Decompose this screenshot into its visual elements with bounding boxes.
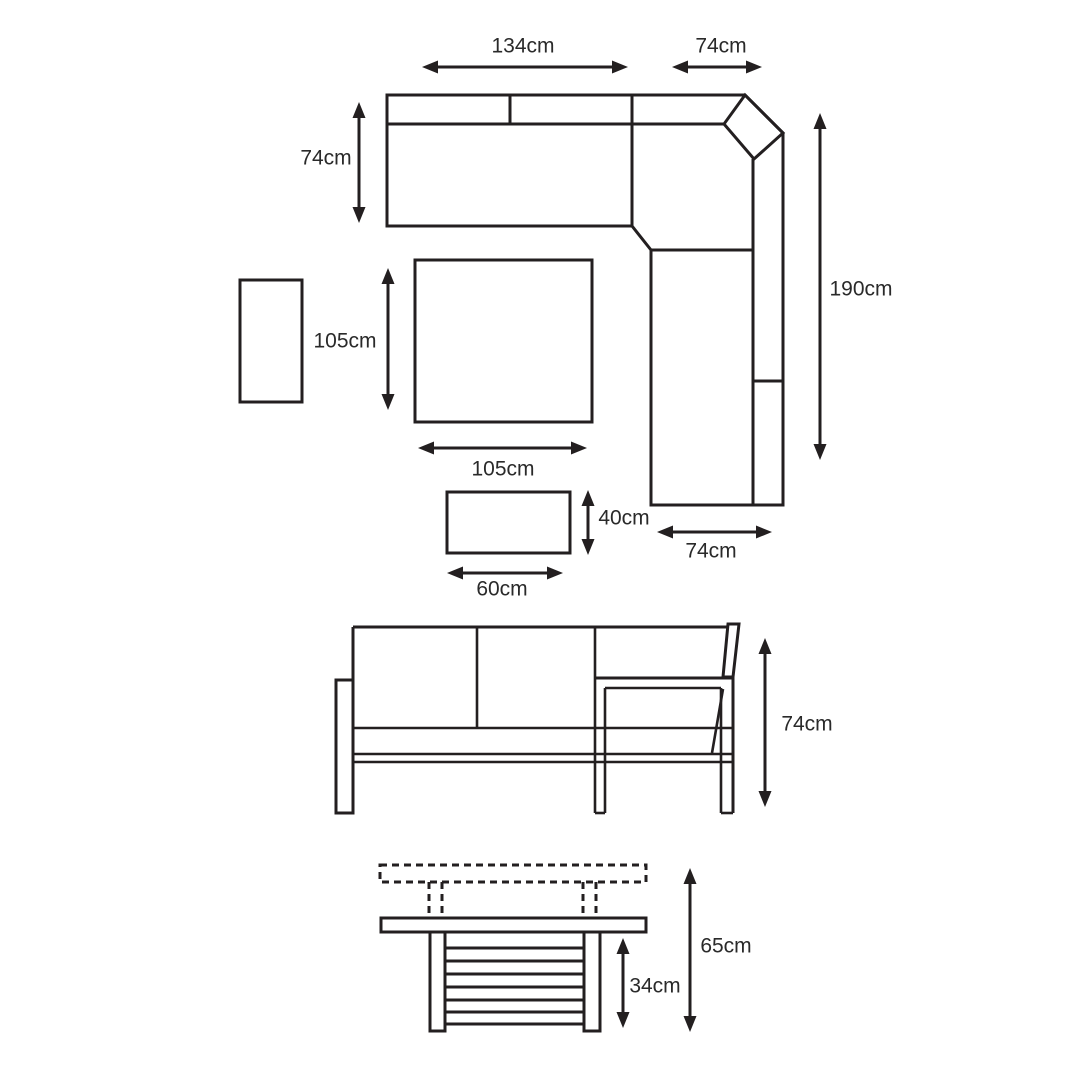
corner-back-diamond (724, 95, 783, 159)
dim-label-right-sofa-length: 190cm (829, 279, 892, 300)
raised-support-left (429, 882, 442, 918)
tabletop (381, 918, 646, 932)
table-leg-right (584, 932, 600, 1031)
dim-arrow-134cm (422, 61, 628, 74)
dim-label-bench-depth: 40cm (598, 508, 649, 529)
dim-arrow-74cm-top (672, 61, 762, 74)
plan-table-top (415, 260, 592, 422)
plan-small-bench (447, 492, 570, 553)
dim-label-sofa-height: 74cm (781, 714, 832, 735)
dim-arrow-34cm (617, 938, 630, 1028)
dim-label-table-lowered-height: 34cm (629, 976, 680, 997)
dim-label-table-raised-height: 65cm (700, 936, 751, 957)
diagram-drawing (0, 0, 1080, 1080)
dim-label-table-width: 105cm (471, 459, 534, 480)
raised-tabletop-dashed (380, 865, 646, 882)
raised-support-right (583, 882, 596, 918)
dim-arrow-105cm-vertical (382, 268, 395, 410)
plan-side-bench (240, 280, 302, 402)
table-side-elevation (380, 865, 646, 1031)
left-arm-panel (336, 680, 353, 813)
dim-arrow-190cm (814, 113, 827, 460)
furniture-dimensions-diagram: 134cm 74cm 74cm 190cm 105cm 105cm 40cm 6… (0, 0, 1080, 1080)
table-leg-left (430, 932, 445, 1031)
table-slats (445, 948, 584, 1024)
dim-arrow-74cm-left (353, 102, 366, 223)
dim-arrow-105cm-horizontal (418, 442, 587, 455)
dim-arrow-74cm-elevation (759, 638, 772, 807)
dim-label-bench-width: 60cm (476, 579, 527, 600)
dim-arrow-74cm-bottom-right (657, 526, 772, 539)
dim-label-left-sofa-width: 134cm (491, 36, 554, 57)
dim-label-right-sofa-width: 74cm (685, 541, 736, 562)
dim-label-corner-section-width: 74cm (695, 36, 746, 57)
dim-label-table-depth: 105cm (313, 331, 376, 352)
dim-arrow-40cm (582, 490, 595, 555)
sofa-front-elevation (336, 624, 739, 813)
dim-label-sofa-depth: 74cm (300, 148, 351, 169)
dim-arrow-65cm (684, 868, 697, 1032)
slanted-back-post (723, 624, 739, 677)
